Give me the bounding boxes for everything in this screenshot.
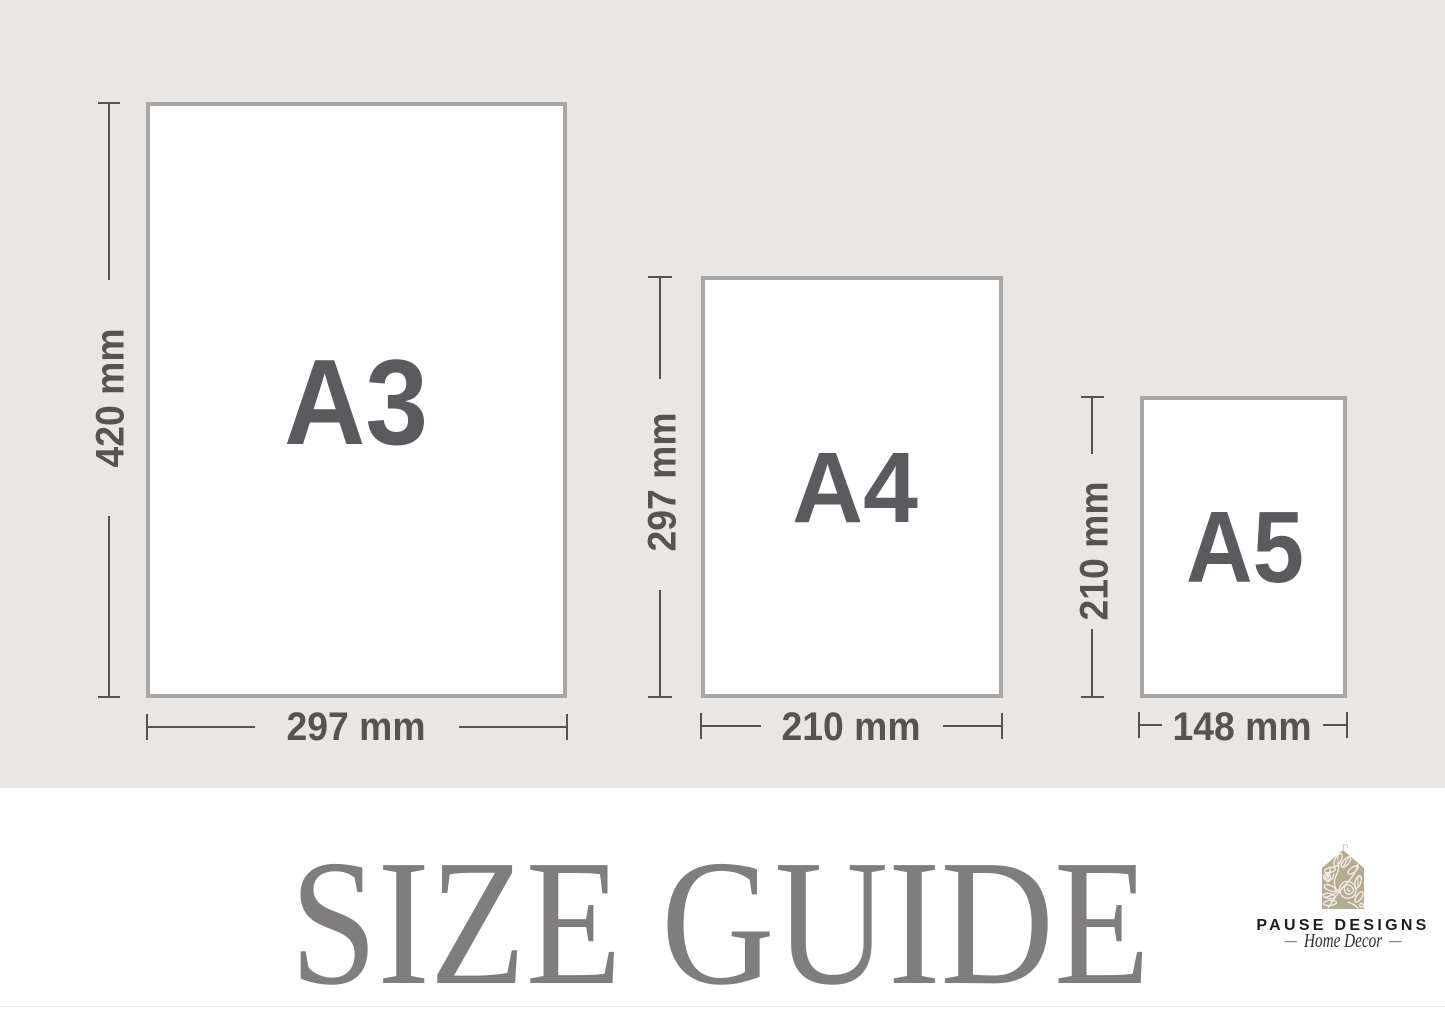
- svg-text:420 mm: 420 mm: [89, 329, 133, 468]
- svg-text:210 mm: 210 mm: [1073, 482, 1117, 621]
- svg-text:A3: A3: [284, 334, 428, 470]
- svg-text:SIZE GUIDE: SIZE GUIDE: [290, 823, 1150, 1021]
- svg-text:148 mm: 148 mm: [1173, 705, 1312, 749]
- svg-text:A4: A4: [792, 432, 918, 544]
- svg-text:297 mm: 297 mm: [287, 705, 426, 749]
- svg-text:210 mm: 210 mm: [782, 705, 921, 749]
- svg-text:A5: A5: [1186, 492, 1304, 604]
- svg-text:297 mm: 297 mm: [641, 413, 685, 552]
